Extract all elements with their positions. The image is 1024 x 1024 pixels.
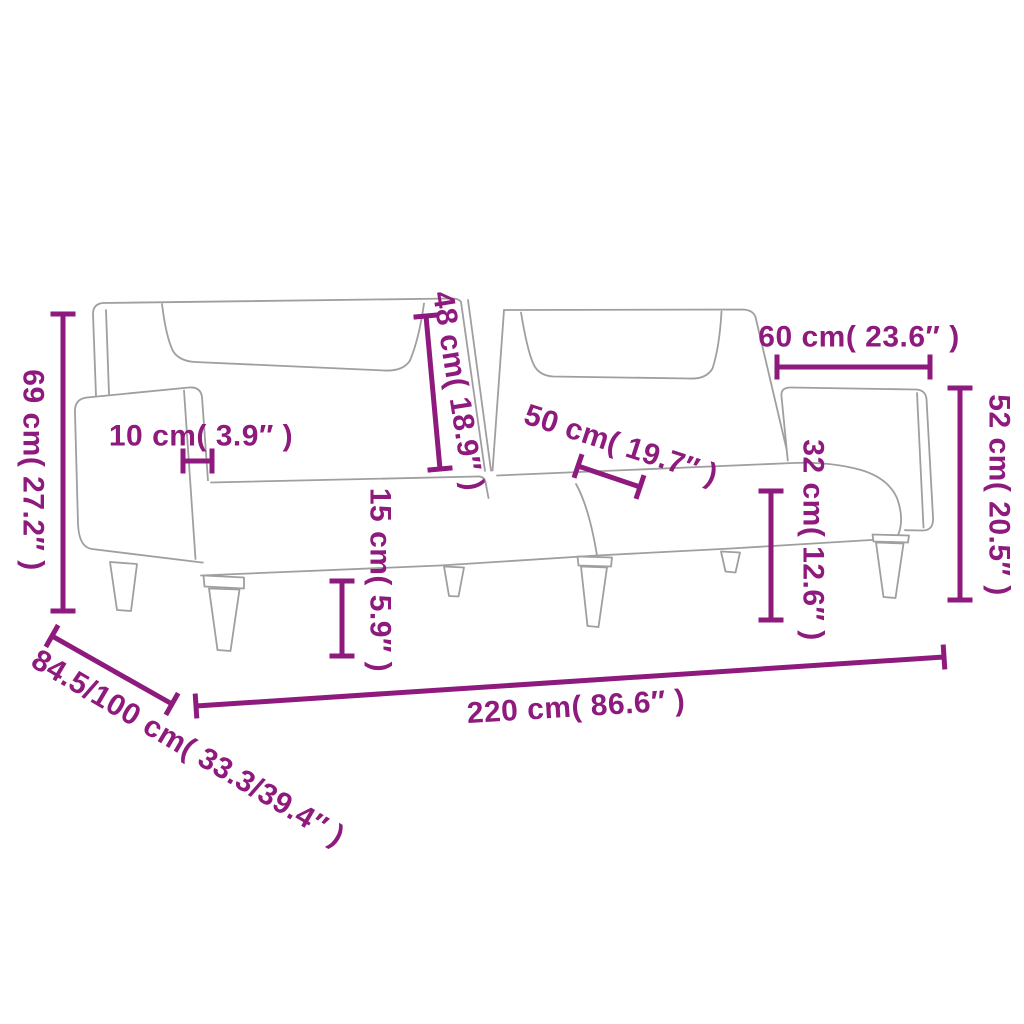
sofa-backrest-left-panel-seam xyxy=(162,304,424,371)
sofa-leg-center xyxy=(581,567,607,628)
sofa-leg-bracket xyxy=(204,576,245,589)
dimension-diagram-canvas: 69 cm( 27.2″ )10 cm( 3.9″ )48 cm( 18.9″ … xyxy=(0,0,1024,1024)
dimension-label: 84.5/100 cm( 33.3/39.4″ ) xyxy=(26,643,350,853)
dimension-label: 60 cm( 23.6″ ) xyxy=(758,321,959,354)
sofa-leg-back-left xyxy=(444,567,464,597)
dimension-label: 69 cm( 27.2″ ) xyxy=(17,369,50,570)
dimension-overall-height-69cm: 69 cm( 27.2″ ) xyxy=(17,314,76,611)
dimension-end-cap xyxy=(195,694,197,719)
sofa-leg-back-right xyxy=(721,552,740,573)
dimension-backrest-height-48cm: 48 cm( 18.9″ ) xyxy=(414,289,491,493)
dimension-label: 52 cm( 20.5″ ) xyxy=(983,394,1016,595)
sofa-left-armrest xyxy=(75,387,213,562)
sofa-leg-left-mid xyxy=(209,589,240,652)
dimension-callouts: 69 cm( 27.2″ )10 cm( 3.9″ )48 cm( 18.9″ … xyxy=(17,289,1016,853)
dimension-label: 10 cm( 3.9″ ) xyxy=(109,420,293,453)
dimension-end-cap xyxy=(428,468,453,470)
dimension-label: 220 cm( 86.6″ ) xyxy=(466,684,686,730)
sofa-leg-front-left xyxy=(110,562,137,611)
dimension-label: 15 cm( 5.9″ ) xyxy=(364,488,397,672)
dimension-depth-845-100cm: 84.5/100 cm( 33.3/39.4″ ) xyxy=(26,625,350,853)
dimension-end-cap xyxy=(943,645,945,670)
sofa-leg-bracket xyxy=(578,557,613,567)
dimension-right-height-52cm: 52 cm( 20.5″ ) xyxy=(948,388,1016,600)
sofa-leg-bracket xyxy=(873,535,910,543)
dimension-overall-width-220cm: 220 cm( 86.6″ ) xyxy=(195,645,945,731)
dimension-section-width-60cm: 60 cm( 23.6″ ) xyxy=(758,321,959,380)
sofa-leg-front-right xyxy=(876,543,904,599)
dimension-diagram-page: 69 cm( 27.2″ )10 cm( 3.9″ )48 cm( 18.9″ … xyxy=(0,0,1024,1024)
sofa-backrest-right-panel-seam xyxy=(521,312,722,379)
dimension-label: 32 cm( 12.6″ ) xyxy=(797,439,830,640)
